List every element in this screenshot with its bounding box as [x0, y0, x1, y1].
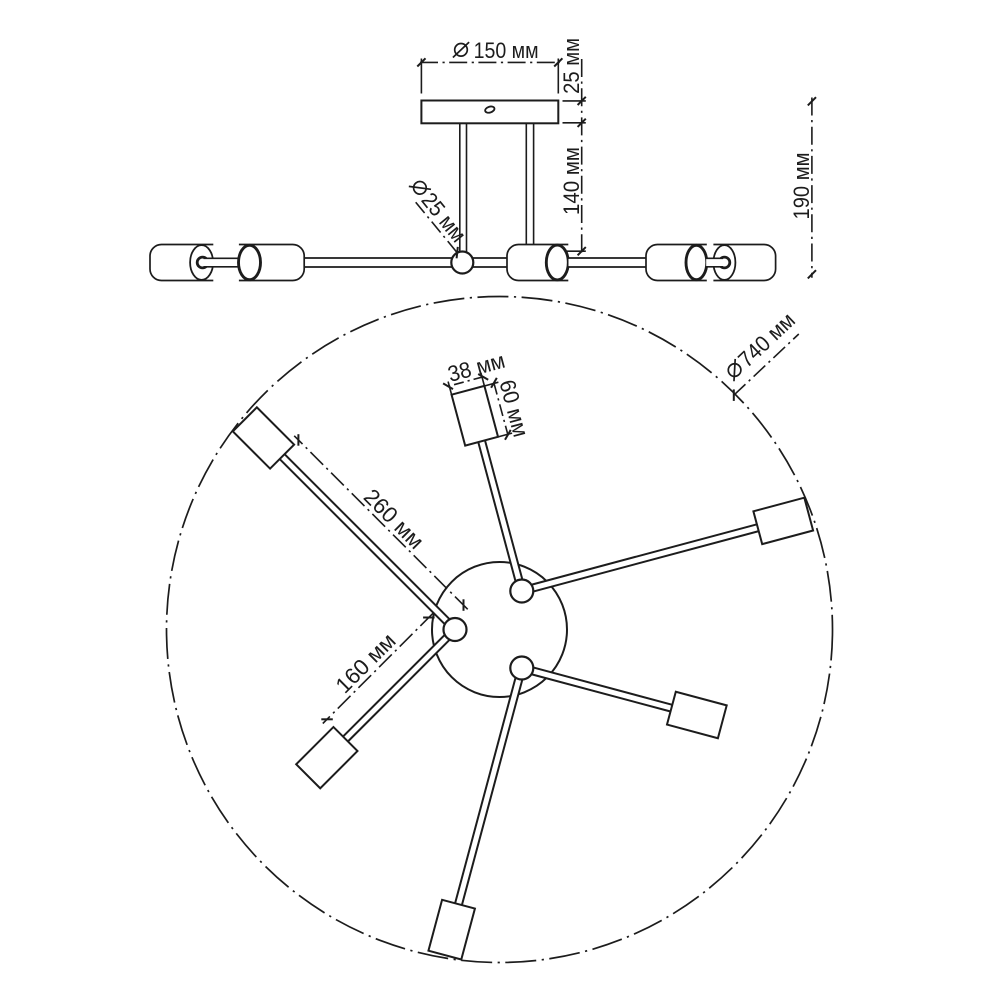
svg-text:38 мм: 38 мм [445, 348, 507, 387]
svg-text:140 мм: 140 мм [559, 147, 584, 215]
svg-text:160 мм: 160 мм [331, 628, 401, 698]
svg-text:150 мм: 150 мм [474, 38, 539, 63]
svg-text:190 мм: 190 мм [789, 153, 814, 220]
svg-text:25 мм: 25 мм [559, 38, 584, 94]
svg-text:740 мм: 740 мм [733, 307, 800, 372]
